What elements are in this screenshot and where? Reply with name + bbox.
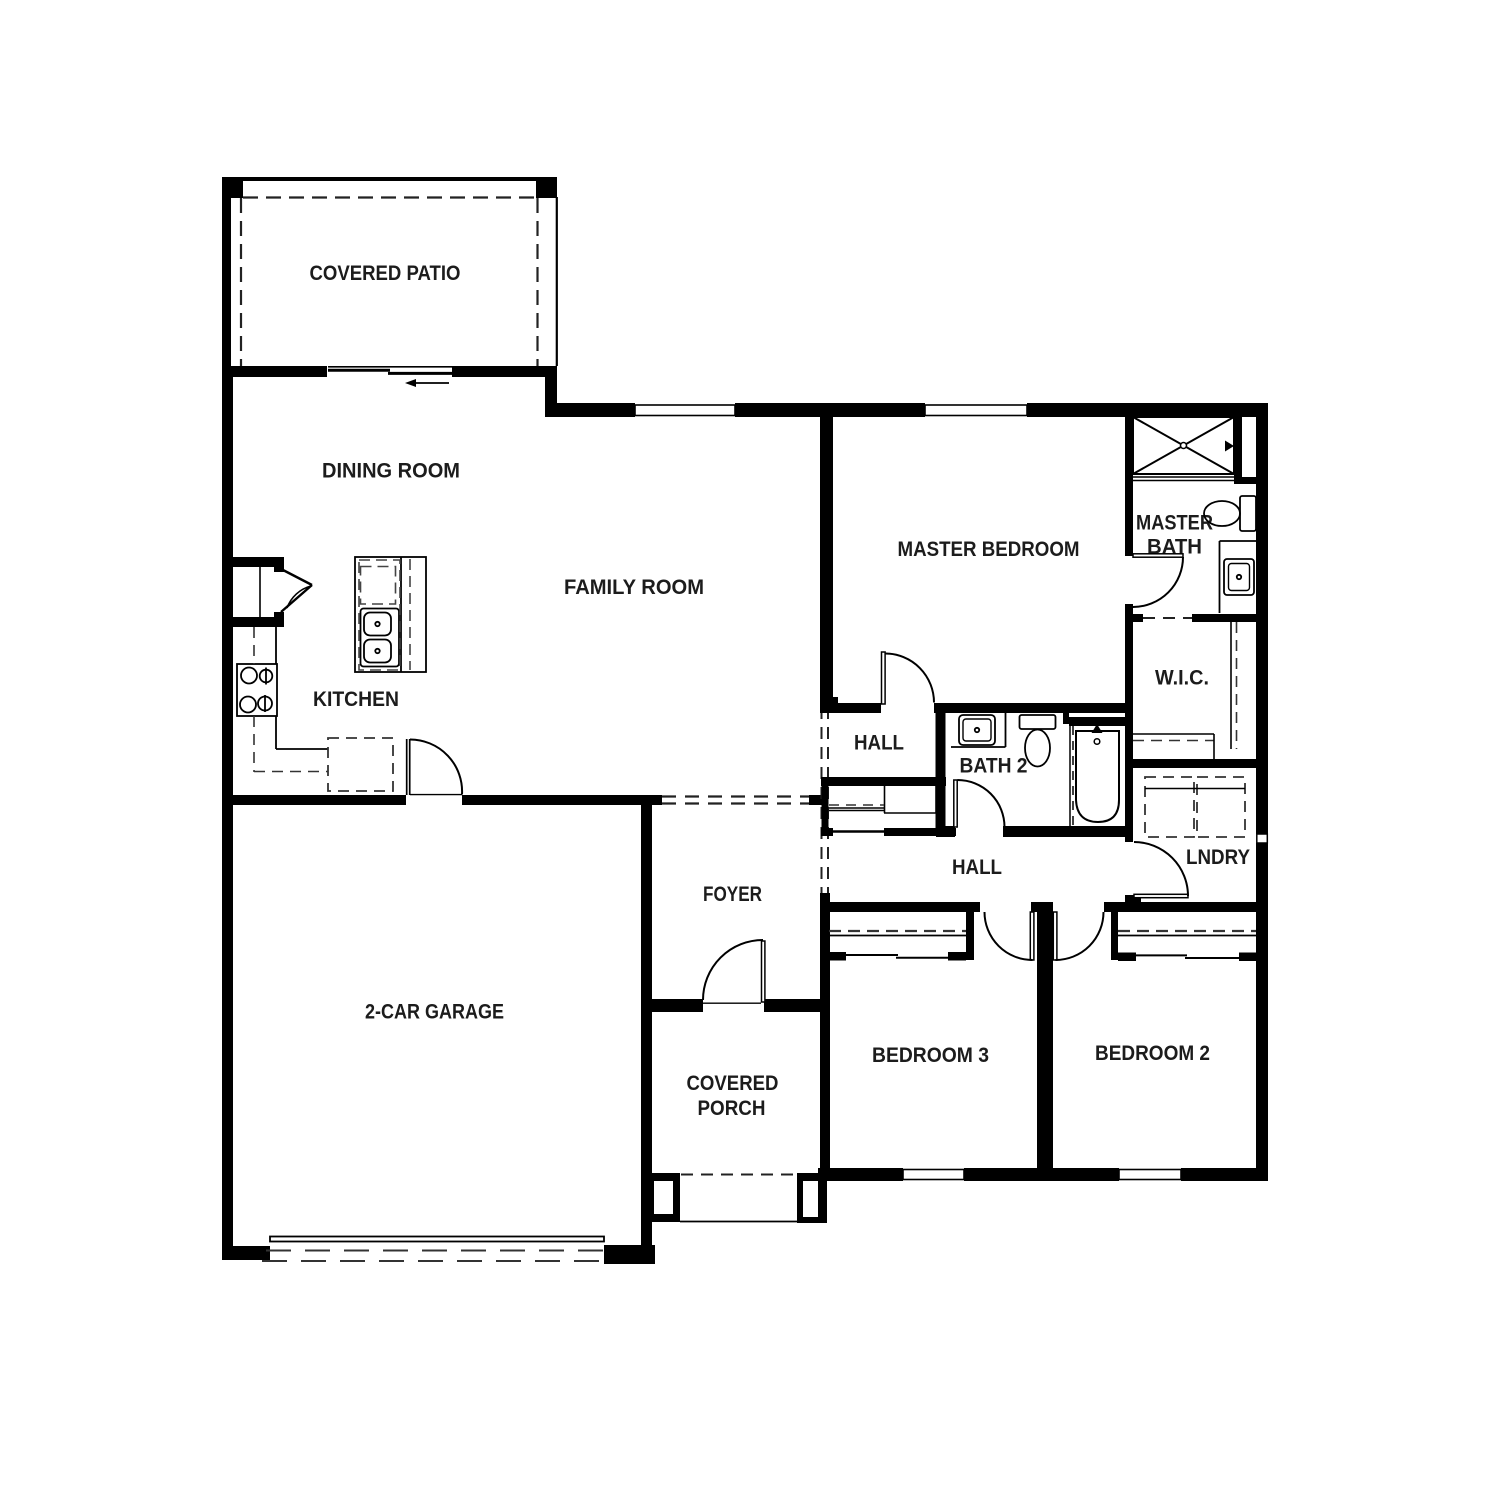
svg-text:COVERED: COVERED [687, 1072, 779, 1095]
svg-text:COVERED PATIO: COVERED PATIO [310, 262, 461, 285]
svg-text:HALL: HALL [854, 732, 904, 755]
svg-text:KITCHEN: KITCHEN [313, 688, 399, 711]
svg-text:PORCH: PORCH [698, 1097, 766, 1120]
svg-text:BATH 2: BATH 2 [960, 755, 1028, 778]
svg-text:FAMILY ROOM: FAMILY ROOM [564, 576, 704, 599]
svg-text:BEDROOM 2: BEDROOM 2 [1095, 1042, 1210, 1065]
svg-text:FOYER: FOYER [703, 883, 762, 906]
svg-text:DINING ROOM: DINING ROOM [322, 460, 460, 483]
svg-text:2-CAR GARAGE: 2-CAR GARAGE [365, 1001, 504, 1024]
svg-text:BEDROOM 3: BEDROOM 3 [872, 1044, 989, 1067]
svg-text:MASTER: MASTER [1136, 512, 1213, 535]
svg-text:W.I.C.: W.I.C. [1155, 667, 1209, 690]
svg-text:LNDRY: LNDRY [1186, 846, 1250, 869]
svg-text:HALL: HALL [952, 856, 1002, 879]
svg-text:MASTER BEDROOM: MASTER BEDROOM [898, 538, 1080, 561]
